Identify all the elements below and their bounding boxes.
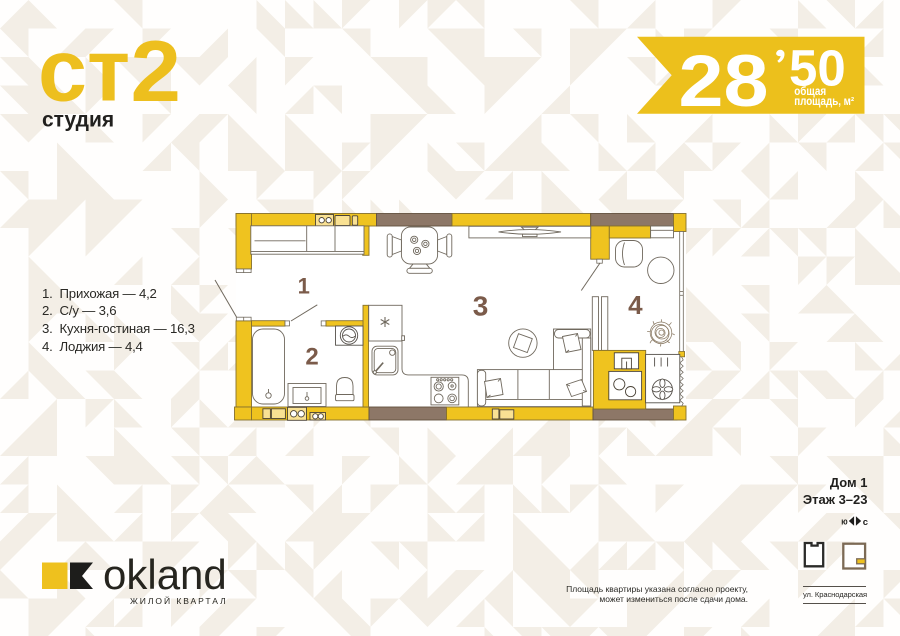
svg-text:3: 3 [473,291,489,322]
svg-text:4: 4 [628,290,643,320]
svg-text:с: с [863,517,868,528]
svg-text:ю: ю [841,517,847,528]
svg-text:ЖИЛОЙ КВАРТАЛ: ЖИЛОЙ КВАРТАЛ [130,595,228,606]
svg-text:1: 1 [298,274,310,299]
svg-text:okland: okland [103,551,227,598]
svg-text:2: 2 [305,344,318,371]
